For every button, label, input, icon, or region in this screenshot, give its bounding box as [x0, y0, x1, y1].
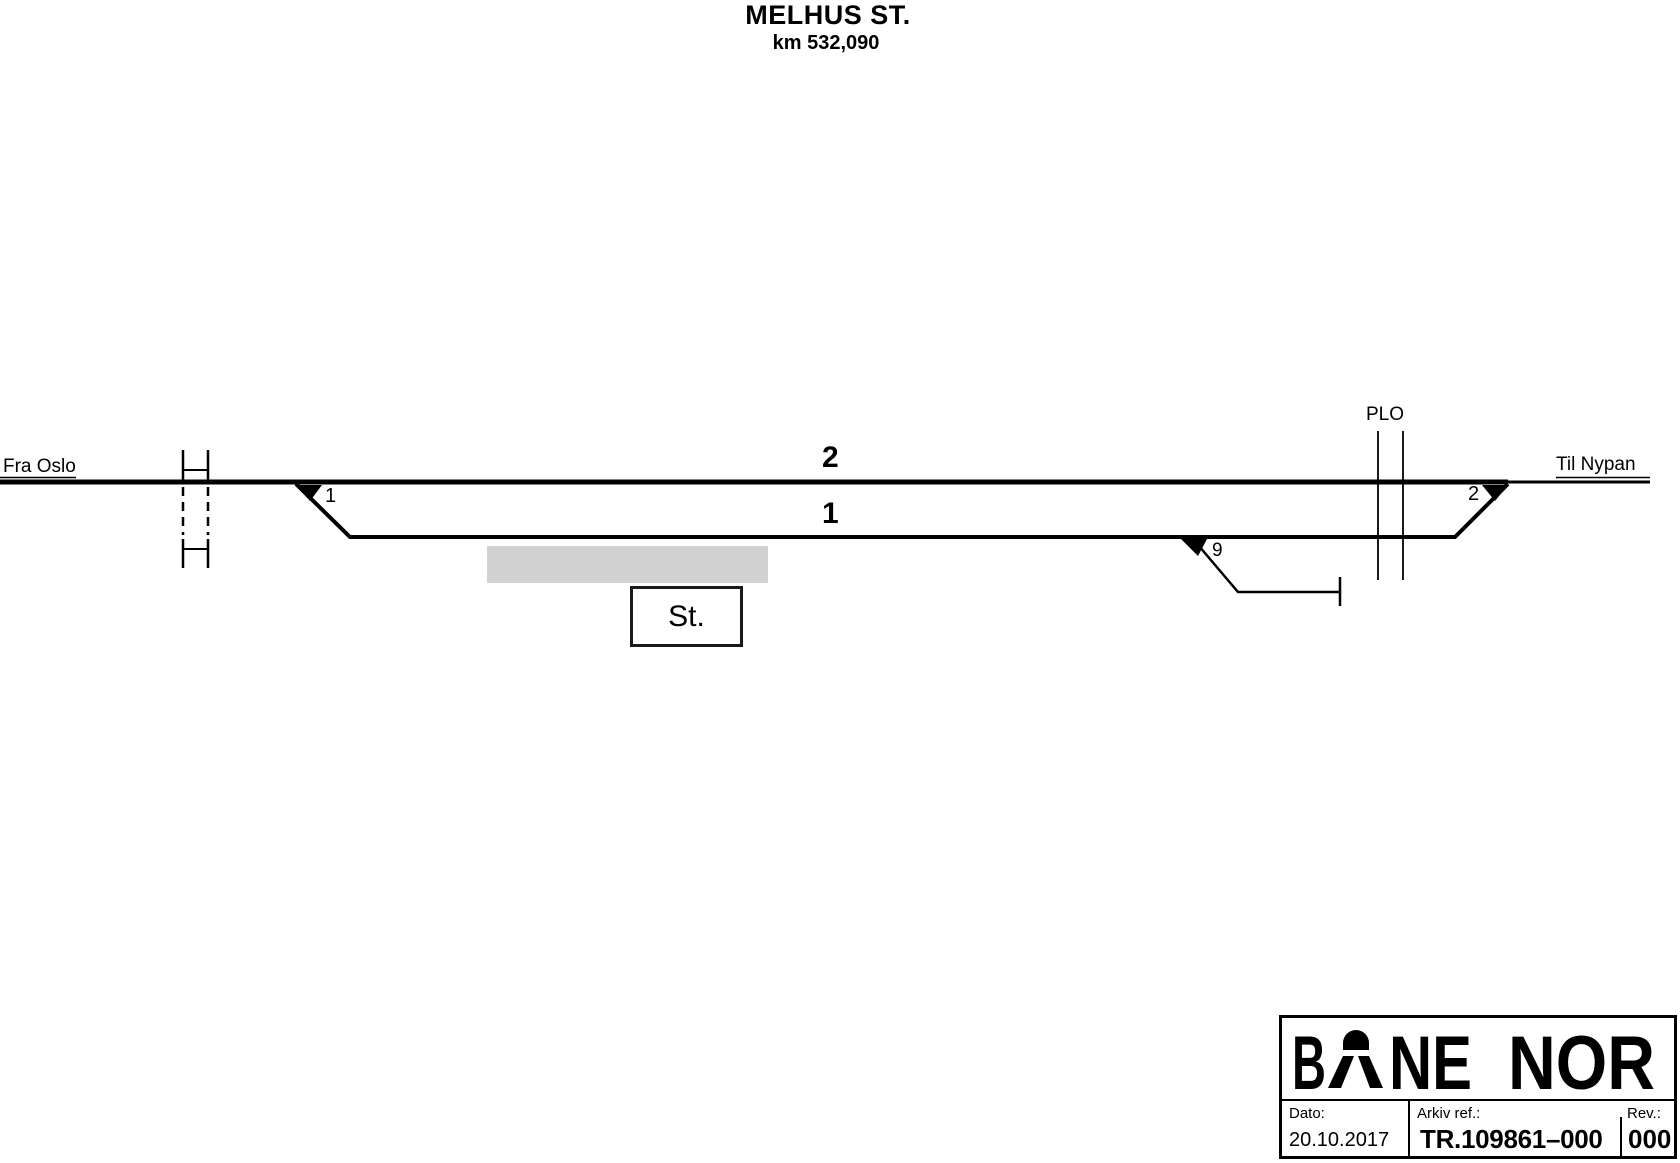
bridge-overpass-icon — [182, 450, 209, 568]
platform — [487, 546, 768, 583]
to-nypan-label: Til Nypan — [1556, 455, 1636, 474]
rev-value: 000 — [1628, 1124, 1671, 1155]
bane-nor-logo: B NE NOR — [1282, 1018, 1674, 1101]
title-block: B NE NOR Dato: 20.10.2017 Arkiv ref.: TR… — [1279, 1015, 1677, 1159]
dato-value: 20.10.2017 — [1289, 1129, 1389, 1152]
track-1-label: 1 — [822, 499, 839, 529]
bane-nor-logo-a-icon — [1328, 1030, 1383, 1088]
station-building-box: St. — [630, 586, 743, 647]
logo-letters-nor: NOR — [1508, 1021, 1655, 1101]
switch-9-triangle — [1181, 539, 1207, 556]
dato-cell: Dato: 20.10.2017 — [1282, 1101, 1410, 1157]
rev-label: Rev.: — [1627, 1105, 1661, 1122]
switch-9-label: 9 — [1212, 541, 1223, 560]
station-building-label: St. — [668, 600, 705, 634]
passing-loop-line — [296, 484, 1508, 537]
level-crossing-lines — [1378, 431, 1403, 580]
arkiv-ref-value: TR.109861–000 — [1420, 1124, 1603, 1155]
track-schematic — [0, 0, 1680, 1163]
arkiv-ref-label: Arkiv ref.: — [1417, 1105, 1480, 1122]
from-oslo-label: Fra Oslo — [3, 457, 76, 476]
rev-cell-divider — [1620, 1117, 1622, 1157]
track-plan-drawing: MELHUS ST. km 532,090 — [0, 0, 1680, 1163]
switch-2-triangle — [1482, 485, 1508, 501]
track-2-label: 2 — [822, 443, 839, 473]
plo-label: PLO — [1366, 405, 1404, 424]
logo-letter-b: B — [1292, 1021, 1326, 1101]
switch-2-label: 2 — [1468, 484, 1479, 504]
switch-1-label: 1 — [325, 486, 336, 506]
rev-cell: Rev.: 000 — [1620, 1101, 1674, 1157]
logo-letters-ne: NE — [1389, 1021, 1472, 1101]
switch-1-triangle — [296, 485, 322, 501]
dato-label: Dato: — [1289, 1105, 1325, 1122]
arkiv-ref-cell: Arkiv ref.: TR.109861–000 — [1410, 1101, 1620, 1157]
title-block-info-row: Dato: 20.10.2017 Arkiv ref.: TR.109861–0… — [1282, 1101, 1674, 1157]
bane-nor-logo-svg: B NE NOR — [1282, 1019, 1674, 1101]
